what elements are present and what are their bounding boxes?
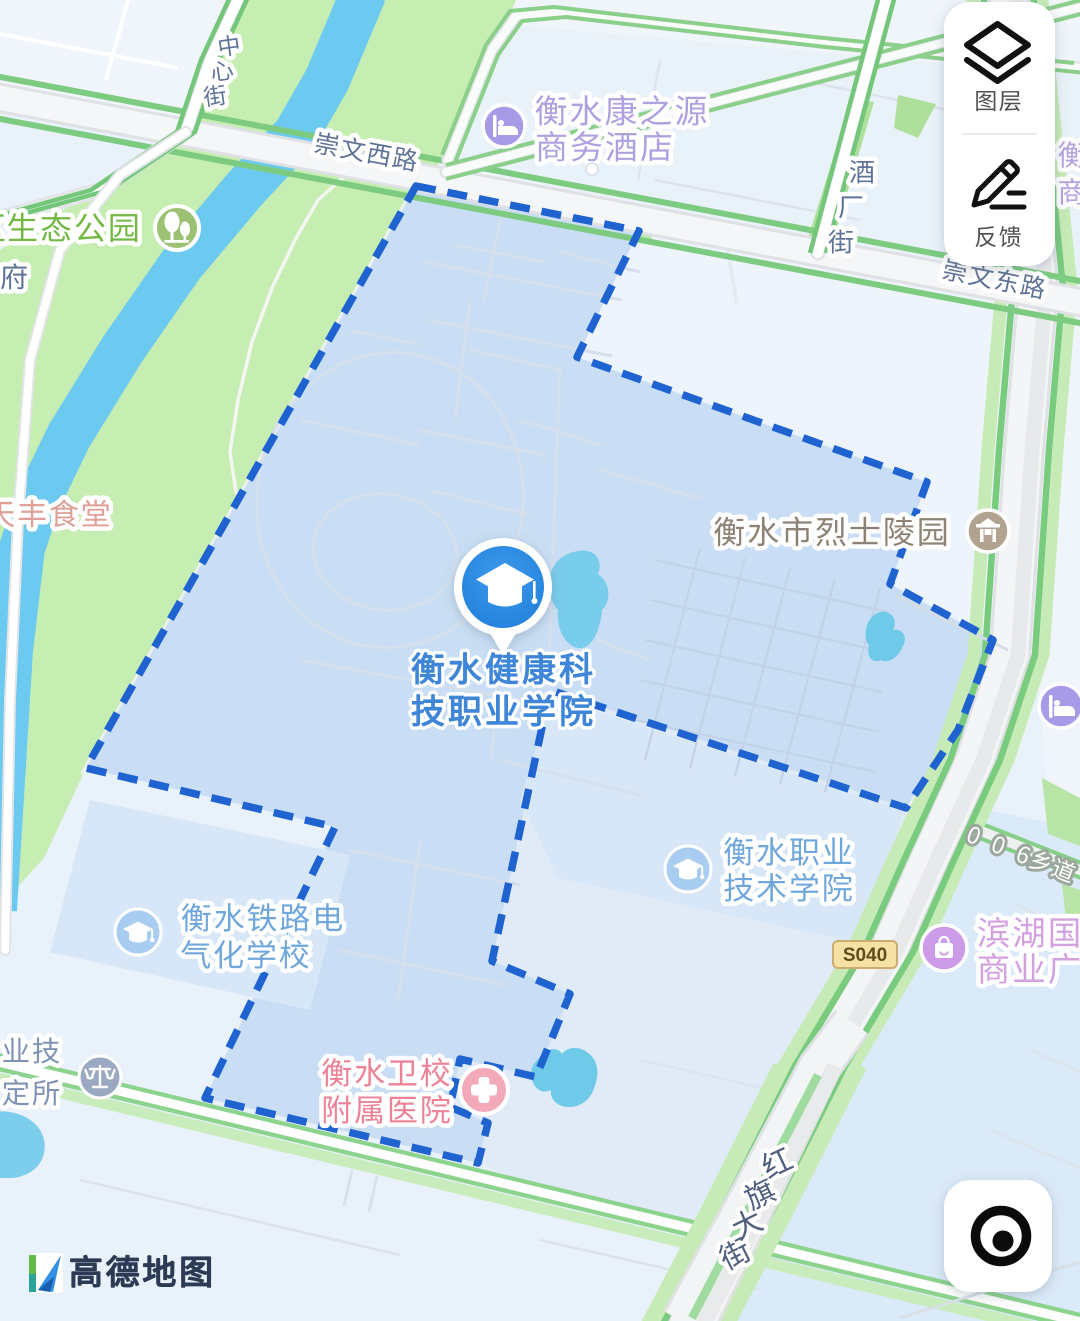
svg-text:S040: S040 <box>843 945 887 966</box>
